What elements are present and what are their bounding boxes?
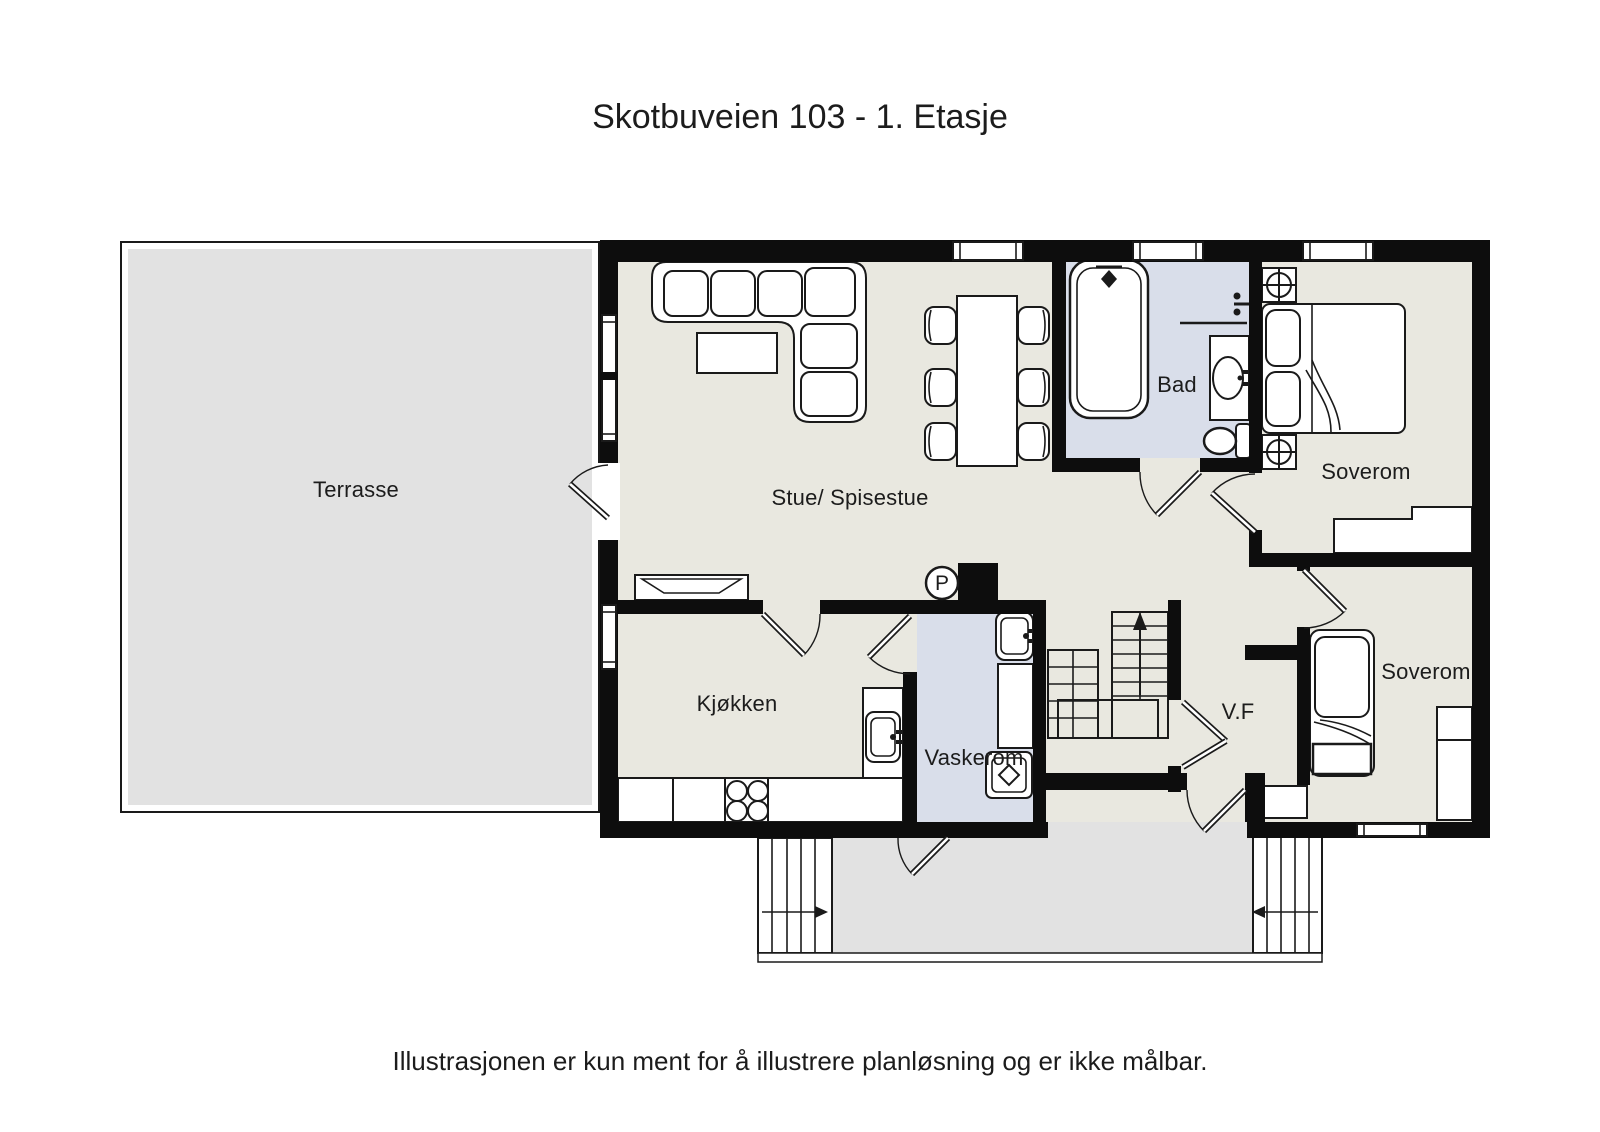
window-icon <box>953 242 1023 260</box>
sideboard-icon <box>635 575 748 600</box>
bathroom-sink-icon <box>1210 336 1249 420</box>
porch-edge-board <box>758 953 1322 962</box>
window-icon <box>1133 242 1203 260</box>
closet-box <box>1260 786 1307 818</box>
nightstand-lamp-icon <box>1262 268 1296 302</box>
double-bed-icon <box>1262 304 1405 433</box>
bathtub-icon <box>1070 260 1148 418</box>
laundry-sink-icon <box>996 612 1033 660</box>
page-title: Skotbuveien 103 - 1. Etasje <box>0 98 1600 137</box>
room-label-terrasse: Terrasse <box>313 477 399 503</box>
chimney-pipe-label: P <box>935 572 949 596</box>
chimney-icon <box>958 563 998 602</box>
room-label-vf: V.F <box>1222 699 1255 725</box>
porch-steps-left <box>758 838 832 953</box>
laundry-counter <box>998 664 1033 748</box>
single-bed-icon <box>1310 630 1374 776</box>
terrace-deck <box>121 242 599 812</box>
window-icon <box>1303 242 1373 260</box>
room-label-bad: Bad <box>1157 372 1197 398</box>
disclaimer-text: Illustrasjonen er kun ment for å illustr… <box>0 1046 1600 1077</box>
nightstand-lamp-icon <box>1262 435 1296 469</box>
dining-table-icon <box>957 296 1017 466</box>
room-label-stue: Stue/ Spisestue <box>771 485 928 511</box>
floor-plan-canvas: Skotbuveien 103 - 1. Etasje Terrasse Stu… <box>0 0 1600 1132</box>
kitchen-sink-icon <box>866 712 902 762</box>
room-label-vaskerom: Vaskerom <box>925 745 1024 771</box>
porch-steps-right <box>1252 834 1322 953</box>
wardrobe-icon <box>1437 707 1472 820</box>
room-label-soverom-top: Soverom <box>1321 459 1410 485</box>
floor-plan-drawing <box>0 0 1600 1132</box>
toilet-icon <box>1204 424 1251 458</box>
coffee-table-icon <box>697 333 777 373</box>
window-icon <box>600 315 618 441</box>
window-icon <box>1357 824 1427 836</box>
room-label-soverom-bottom: Soverom <box>1381 659 1470 685</box>
room-label-kjokken: Kjøkken <box>697 691 778 717</box>
window-icon <box>602 605 616 669</box>
